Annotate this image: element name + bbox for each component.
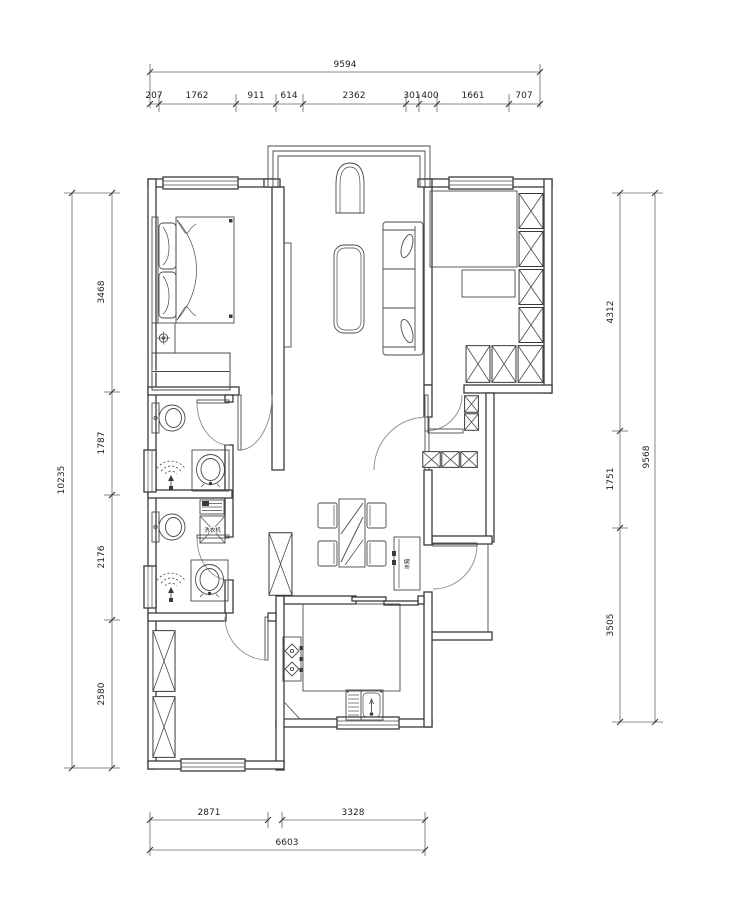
- svg-text:207: 207: [145, 91, 162, 101]
- svg-text:3505: 3505: [606, 614, 616, 637]
- toilet-icon: [152, 512, 185, 542]
- door-living-foyer: [374, 417, 429, 470]
- living-room: [284, 163, 423, 355]
- door-bedroom1: [238, 395, 272, 450]
- wardrobe-xbox: [466, 346, 490, 383]
- bathroom-2: 洗衣机: [152, 500, 228, 602]
- door-entry: [433, 543, 477, 589]
- shower-icon: [157, 461, 185, 490]
- window-bathroom1: [144, 450, 156, 492]
- dining-table: [339, 499, 365, 567]
- gas-stove: [283, 637, 303, 681]
- wardrobe-xbox: [519, 308, 543, 343]
- dimensions-top: 9594 207 1762 911 614 2362 301 400 1661 …: [145, 60, 543, 112]
- floor-plan-canvas: 9594 207 1762 911 614 2362 301 400 1661 …: [0, 0, 740, 900]
- storage-cabinet-xbox: [269, 533, 292, 596]
- floor-plan-svg: 9594 207 1762 911 614 2362 301 400 1661 …: [0, 0, 740, 900]
- bedroom-1: [152, 217, 234, 390]
- arched-console: [336, 163, 364, 213]
- dimensions-bottom: 2871 3328 6603: [147, 808, 428, 856]
- desk-return: [462, 270, 515, 297]
- washing-machine-label: 洗衣机: [204, 526, 221, 534]
- svg-text:911: 911: [247, 91, 264, 101]
- wardrobe-xbox: [519, 194, 543, 229]
- dim-right-total: 9568: [642, 445, 652, 468]
- window-bedroom2: [181, 759, 245, 771]
- svg-text:2362: 2362: [343, 91, 366, 101]
- hanging-wardrobe: [152, 353, 230, 390]
- sofa-pillow: [399, 318, 416, 344]
- sofa: [383, 222, 423, 355]
- svg-text:3328: 3328: [342, 808, 365, 818]
- bay-window: [268, 146, 430, 187]
- dim-bottom-total: 6603: [276, 838, 299, 848]
- wardrobe-xbox: [519, 232, 543, 267]
- svg-text:4312: 4312: [606, 301, 616, 324]
- corner-shelf: [284, 702, 300, 719]
- dimensions-right: 4312 1751 3505 9568: [606, 190, 663, 725]
- window-study: [449, 177, 513, 189]
- walls: [148, 179, 552, 770]
- svg-text:3468: 3468: [97, 280, 107, 303]
- svg-text:301: 301: [403, 91, 420, 101]
- dining: 冰箱: [269, 499, 420, 595]
- fridge-label: 冰箱: [403, 558, 411, 570]
- svg-text:2580: 2580: [97, 682, 107, 705]
- washbasin-icon: [191, 560, 228, 601]
- wardrobe-xbox: [519, 270, 543, 305]
- windows: [144, 177, 513, 771]
- svg-text:614: 614: [280, 91, 297, 101]
- svg-text:1751: 1751: [606, 468, 616, 491]
- tv-board: [284, 243, 291, 347]
- toilet-icon: [152, 403, 185, 433]
- shoe-cabinet-xbox: [461, 452, 478, 468]
- coffee-table: [334, 245, 364, 333]
- wardrobe-xbox: [492, 346, 516, 383]
- kitchen: [283, 604, 400, 720]
- shoe-cabinet-xbox: [442, 452, 459, 468]
- bathroom-1: [152, 403, 229, 491]
- svg-text:1762: 1762: [186, 91, 209, 101]
- shoe-cabinet-xbox: [465, 414, 479, 431]
- wardrobe-xbox: [153, 697, 175, 758]
- door-bedroom2: [225, 617, 268, 660]
- svg-text:707: 707: [515, 91, 532, 101]
- window-bathroom2: [144, 566, 156, 608]
- sofa-pillow: [399, 233, 416, 259]
- dimensions-left: 10235 3468 1787 2176 2580: [57, 190, 120, 771]
- wardrobe-xbox: [153, 631, 175, 692]
- shoe-cabinet-xbox: [465, 396, 479, 413]
- window-bedroom1: [163, 177, 238, 189]
- dim-left-total: 10235: [57, 466, 67, 495]
- svg-text:2176: 2176: [97, 545, 107, 568]
- wardrobe-xbox: [518, 346, 543, 383]
- dim-top-total: 9594: [334, 60, 357, 70]
- study: [430, 191, 543, 382]
- shower-icon: [157, 573, 185, 602]
- washing-machine: 洗衣机: [200, 500, 225, 543]
- desk: [430, 191, 517, 267]
- svg-text:400: 400: [421, 91, 438, 101]
- washbasin-icon: [192, 450, 229, 491]
- svg-text:1787: 1787: [97, 432, 107, 455]
- sink: [346, 690, 383, 720]
- svg-text:2871: 2871: [198, 808, 221, 818]
- door-bathroom1: [197, 400, 229, 445]
- bed: [152, 217, 234, 323]
- counter: [303, 604, 400, 691]
- svg-text:1661: 1661: [462, 91, 485, 101]
- refrigerator: 冰箱: [392, 537, 420, 590]
- shoe-cabinet-xbox: [423, 452, 440, 468]
